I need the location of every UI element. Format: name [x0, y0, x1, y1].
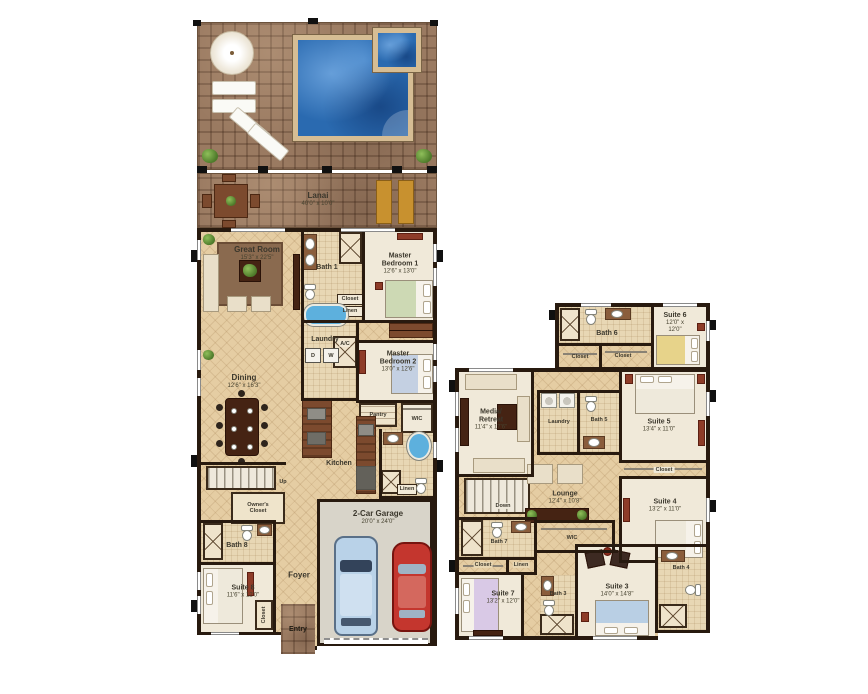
nightstand — [697, 323, 705, 331]
room-name: Dining — [228, 374, 261, 383]
room-dims: 11'4" x 17'6" — [475, 424, 507, 431]
wall — [537, 520, 615, 523]
room-name: Suite 4 — [649, 498, 681, 506]
room-label-laundry2: Laundry — [548, 419, 570, 425]
lounge-chair — [212, 81, 256, 95]
desk-divider — [389, 330, 433, 331]
toilet-icon — [415, 478, 427, 494]
room-label-master2: Master Bedroom 2 13'0" x 12'6" — [372, 351, 424, 374]
room-name: Closet — [474, 562, 493, 568]
wall — [619, 476, 706, 479]
window — [455, 588, 459, 614]
place-setting — [231, 444, 237, 450]
dresser — [359, 350, 366, 374]
wall — [619, 372, 622, 460]
plant-icon — [202, 149, 218, 163]
closet-label: Closet — [474, 562, 493, 568]
window — [593, 636, 637, 640]
closet-label: Closet — [572, 354, 589, 360]
roof-tick — [191, 250, 197, 262]
room-dims: 13'4" x 11'0" — [643, 426, 675, 433]
sink-icon — [515, 523, 527, 531]
pillow — [206, 591, 213, 605]
room-label-kitchen: Kitchen — [326, 460, 352, 468]
mask — [658, 633, 710, 643]
armchair — [227, 296, 247, 312]
dining-chair — [216, 404, 223, 411]
room-dims: 12'4" x 10'8" — [549, 498, 582, 505]
wall — [619, 476, 622, 560]
patio-chair — [222, 174, 236, 182]
room-dims: 12'0" x 12'0" — [660, 320, 691, 334]
sofa — [203, 254, 219, 312]
window — [581, 303, 611, 307]
dining-chair — [261, 422, 268, 429]
kitchen-island — [302, 398, 332, 458]
window — [197, 240, 201, 260]
toilet-icon — [585, 396, 597, 412]
room-dims: 40'0" x 10'0" — [302, 201, 335, 208]
window — [663, 303, 697, 307]
cooktop — [307, 408, 326, 420]
garage-door — [324, 638, 428, 644]
room-label-suite8: Suite 8 11'6" x 12'0" — [227, 584, 259, 599]
wall-post — [197, 166, 207, 173]
linen-label: Linen — [400, 486, 415, 492]
wall — [655, 544, 706, 547]
room-name: Suite 5 — [643, 418, 675, 426]
wall — [651, 307, 654, 367]
room-name: Bath 5 — [587, 417, 611, 423]
room-name: Linen — [513, 562, 530, 568]
appliance-letter: D — [311, 353, 315, 359]
sedan-rear-window — [399, 610, 425, 618]
room-label-bath4: Bath 4 — [669, 565, 693, 571]
room-name: Suite 8 — [227, 584, 259, 592]
blanket — [386, 281, 416, 317]
roof-tick — [710, 390, 716, 402]
stairs-up — [206, 466, 276, 490]
closet-label: Closet — [261, 607, 267, 624]
wall — [356, 340, 433, 343]
lanai: Lanai 40'0" x 10'0" — [197, 173, 437, 228]
sofa — [473, 458, 525, 473]
bed — [656, 335, 700, 365]
floor2-main-wing: Media/ Retreat 11'4" x 17'6" Laundry Bat… — [455, 368, 710, 640]
wall-post — [392, 166, 402, 173]
washer-label: W — [328, 353, 333, 359]
room-dims: 15'3" x 22'5" — [225, 255, 289, 262]
roof-tick — [449, 380, 455, 392]
stairs-down-label: Down — [494, 503, 513, 509]
pillow — [206, 573, 213, 587]
window — [433, 442, 437, 458]
room-dims: 14'0" x 14'8" — [601, 591, 634, 598]
media-console — [460, 398, 469, 446]
room-label-media: Media/ Retreat 11'4" x 17'6" — [475, 409, 507, 432]
wall — [201, 562, 276, 565]
wall — [301, 398, 359, 401]
dresser — [623, 498, 630, 522]
shower-stall — [461, 520, 483, 556]
room-name: Linen — [343, 308, 358, 314]
shower-stall — [540, 614, 574, 635]
wall — [655, 544, 658, 632]
pillow — [694, 541, 701, 554]
shower-stall — [560, 308, 580, 341]
linen-label: Linen — [513, 562, 530, 568]
room-name: Closet — [572, 354, 589, 360]
room-name: Suite 6 — [660, 312, 691, 320]
island-sink — [307, 432, 326, 445]
room-name: Lounge — [549, 490, 582, 498]
linen-label: Linen — [343, 308, 358, 314]
wall-post — [322, 166, 332, 173]
room-label-master1: Master Bedroom 1 12'6" x 13'0" — [374, 253, 426, 276]
nightstand — [625, 374, 633, 384]
patio-chair — [222, 220, 236, 228]
sink-icon — [387, 434, 399, 443]
pillow — [694, 524, 701, 537]
garage: 2-Car Garage 20'0" x 24'0" — [317, 499, 433, 646]
bed — [595, 600, 649, 636]
room-name: Master Bedroom 1 — [374, 253, 426, 269]
room-label-suite6: Suite 6 12'0" x 12'0" — [660, 312, 691, 334]
room-name: A/C — [339, 341, 350, 347]
nightstand — [375, 282, 383, 290]
room-label-bath5: Bath 5 — [587, 417, 611, 423]
appliance-letter: W — [328, 353, 333, 359]
wall — [619, 460, 706, 463]
room-name: Bath 3 — [546, 591, 570, 597]
sofa — [465, 374, 517, 390]
sink-icon — [611, 310, 623, 318]
room-label-entry: Entry — [289, 626, 307, 634]
tv-console — [293, 254, 300, 310]
window — [341, 228, 395, 232]
car-sedan — [392, 542, 432, 632]
room-dims: 13'2" x 11'0" — [649, 506, 681, 513]
room-name: Bath 1 — [316, 264, 337, 272]
toilet-icon — [543, 600, 555, 616]
room-dims: 12'6" x 16'3" — [228, 383, 261, 390]
wall — [362, 232, 365, 320]
room-label-suite4: Suite 4 13'2" x 11'0" — [649, 498, 681, 513]
floor1-house: 2-Car Garage 20'0" x 24'0" — [197, 228, 437, 650]
ottoman — [557, 464, 583, 484]
pillow — [604, 627, 618, 634]
room-name: Bath 4 — [669, 565, 693, 571]
sink-icon — [588, 438, 600, 447]
room-label-suite7: Suite 7 13'2" x 12'0" — [487, 590, 520, 605]
pillow — [423, 284, 431, 297]
wall — [459, 572, 537, 575]
chaise — [517, 396, 530, 442]
toilet-icon — [241, 525, 253, 541]
room-label-dining: Dining 12'6" x 16'3" — [228, 374, 261, 390]
wall — [619, 560, 658, 563]
room-name: WIC — [412, 416, 423, 422]
wall — [379, 496, 433, 499]
dining-chair — [261, 440, 268, 447]
soaking-tub — [407, 432, 431, 460]
dining-chair — [216, 440, 223, 447]
room-label-bath8: Bath 8 — [226, 542, 247, 550]
room-label-bath3: Bath 3 — [546, 591, 570, 597]
wall — [356, 400, 433, 403]
plant-icon — [577, 510, 587, 520]
pillow — [463, 583, 470, 596]
spa — [373, 28, 421, 72]
plant-icon — [416, 149, 432, 163]
room-name: Foyer — [288, 572, 310, 581]
pillow — [691, 351, 698, 362]
room-dims: 20'0" x 24'0" — [338, 519, 418, 526]
wall — [201, 520, 276, 523]
shower-stall — [339, 232, 362, 264]
bed — [385, 280, 433, 318]
wall — [201, 462, 286, 465]
closet-rod — [541, 528, 607, 530]
room-dims: 12'6" x 13'0" — [374, 268, 426, 275]
floor2-top-wing: Bath 6 Closet Closet Suite 6 12'0" x 12'… — [555, 303, 710, 371]
room-name: Closet — [342, 296, 359, 302]
wall — [559, 343, 651, 346]
shower-stall — [659, 604, 687, 628]
room-name: Kitchen — [326, 460, 352, 468]
pillow — [423, 376, 431, 389]
room-name: Owner's Closet — [242, 502, 274, 514]
window — [469, 368, 513, 372]
room-label-garage: 2-Car Garage 20'0" x 24'0" — [338, 510, 418, 526]
blanket — [596, 601, 648, 623]
mask — [197, 635, 281, 655]
sink-icon — [259, 526, 270, 534]
room-name: Pantry — [369, 412, 386, 418]
room-label-great-room: Great Room 15'3" x 22'5" — [225, 246, 289, 262]
pillow — [463, 600, 470, 613]
sedan-roof — [398, 576, 426, 608]
blanket — [636, 389, 694, 413]
bed — [635, 374, 695, 414]
room-label-foyer: Foyer — [288, 572, 310, 581]
dining-chair — [261, 404, 268, 411]
room-name: Linen — [400, 486, 415, 492]
room-name: Media/ — [475, 409, 507, 417]
window — [197, 350, 201, 370]
blanket — [657, 336, 685, 364]
ac-label: A/C — [339, 341, 350, 347]
wall — [612, 520, 615, 553]
suv-rear-window — [341, 618, 371, 626]
wall — [301, 328, 304, 398]
wall-post — [258, 166, 268, 173]
dining-chair — [216, 422, 223, 429]
wall — [531, 372, 534, 474]
toilet-icon — [304, 284, 316, 300]
wall — [459, 474, 534, 477]
wall — [537, 390, 540, 452]
umbrella-pole — [230, 51, 234, 55]
wall — [356, 320, 359, 400]
window — [197, 378, 201, 396]
closet-label: Closet — [342, 296, 359, 302]
window — [231, 228, 285, 232]
toilet-icon — [585, 309, 597, 325]
mask — [317, 646, 437, 654]
room-label-bath1: Bath 1 — [316, 264, 337, 272]
toilet-icon — [685, 584, 701, 596]
wall — [379, 429, 382, 496]
room-name: Closet — [261, 607, 267, 624]
room-label-suite3: Suite 3 14'0" x 14'8" — [601, 583, 634, 598]
closet-label: Closet — [654, 467, 675, 473]
wall — [521, 575, 524, 636]
window — [211, 632, 239, 635]
window — [433, 344, 437, 360]
dresser — [698, 420, 705, 446]
dining-chair — [238, 390, 245, 397]
roof-tick — [449, 560, 455, 572]
sink-icon — [666, 552, 678, 560]
room-label-owners-closet: Owner's Closet — [242, 502, 274, 514]
roof-tick — [193, 20, 201, 26]
wall-oven — [358, 424, 374, 436]
lounge-chair — [247, 122, 290, 161]
window — [197, 596, 201, 614]
pillow — [423, 301, 431, 314]
pool-deck — [197, 22, 437, 170]
place-setting — [231, 426, 237, 432]
sink-icon — [305, 238, 315, 250]
sun-lounger — [376, 180, 392, 224]
pillow — [423, 359, 431, 372]
sink-icon — [543, 580, 552, 591]
roof-tick — [430, 20, 438, 26]
pillow — [624, 627, 638, 634]
plant-icon — [243, 264, 257, 277]
window — [455, 392, 459, 416]
suv-windshield — [340, 560, 372, 572]
roof-tick — [308, 18, 318, 24]
sun-lounger — [398, 180, 414, 224]
room-name: Suite 3 — [601, 583, 634, 591]
washer-icon — [541, 393, 557, 408]
place-setting — [247, 444, 253, 450]
suv-roof — [340, 574, 372, 616]
patio-chair — [250, 194, 260, 208]
wall — [575, 544, 658, 547]
closet-rod — [403, 408, 431, 410]
room-name: Closet — [654, 467, 675, 473]
sink-icon — [305, 254, 315, 266]
shower-stall — [203, 523, 223, 560]
place-setting — [247, 408, 253, 414]
roof-tick — [710, 320, 716, 330]
wall — [537, 452, 622, 455]
room-name: 2-Car Garage — [338, 510, 418, 519]
car-suv — [334, 536, 378, 636]
floorplan-image: Lanai 40'0" x 10'0" 2-Car Garage 20'0" x… — [0, 0, 868, 694]
room-label-laundry: Laundry — [311, 336, 339, 344]
wall — [599, 346, 602, 367]
pillow — [658, 376, 672, 383]
wall — [459, 557, 534, 560]
place-setting — [247, 426, 253, 432]
sedan-windshield — [398, 564, 426, 574]
roof-tick — [549, 310, 555, 320]
room-name: Lanai — [302, 192, 335, 201]
room-name: Retreat — [475, 416, 507, 424]
dresser — [397, 233, 423, 240]
wall — [575, 544, 578, 636]
room-label-lounge: Lounge 12'4" x 10'8" — [549, 490, 582, 505]
armchair — [251, 296, 271, 312]
room-name: Up — [279, 479, 286, 485]
dryer-label: D — [311, 353, 315, 359]
patio-chair — [202, 194, 212, 208]
pillow — [691, 338, 698, 349]
room-name: Great Room — [225, 246, 289, 255]
wall — [577, 390, 580, 452]
room-label-suite5: Suite 5 13'4" x 11'0" — [643, 418, 675, 433]
room-name: Suite 7 — [487, 590, 520, 598]
room-name: Bath 8 — [226, 542, 247, 550]
wall — [273, 520, 276, 632]
room-name: Entry — [289, 626, 307, 634]
room-label-wic2: WIC — [567, 535, 578, 541]
roof-tick — [437, 460, 443, 472]
plant-icon — [203, 350, 214, 360]
roof-tick — [710, 500, 716, 512]
stairs-up-label: Up — [279, 479, 286, 485]
room-label-bath7: Bath 7 — [482, 539, 516, 545]
room-label-pantry: Pantry — [369, 412, 386, 418]
closet-label: Closet — [615, 353, 632, 359]
wall — [534, 517, 537, 575]
roof-tick — [437, 250, 443, 262]
room-label-lanai: Lanai 40'0" x 10'0" — [302, 192, 335, 208]
plant-icon — [226, 196, 236, 206]
window — [433, 268, 437, 286]
room-name: Laundry — [311, 336, 339, 344]
room-name: Master Bedroom 2 — [372, 351, 424, 367]
toilet-icon — [491, 522, 503, 538]
nightstand — [697, 374, 705, 384]
wall — [301, 320, 433, 323]
wall-post — [427, 166, 437, 173]
room-name: Down — [494, 503, 513, 509]
room-dims: 11'6" x 12'0" — [227, 592, 259, 599]
room-name: WIC — [567, 535, 578, 541]
plant-icon — [203, 234, 215, 245]
window — [197, 572, 201, 590]
pillow — [640, 376, 654, 383]
roof-tick — [191, 600, 197, 612]
dryer-icon — [559, 393, 575, 408]
room-dims: 13'2" x 12'0" — [487, 598, 520, 605]
room-dims: 13'0" x 12'6" — [372, 366, 424, 373]
room-name: Bath 7 — [482, 539, 516, 545]
room-label-bath6: Bath 6 — [596, 330, 617, 338]
wall — [459, 517, 534, 520]
window — [433, 366, 437, 382]
roof-tick — [191, 455, 197, 467]
fridge-icon — [356, 466, 376, 490]
window — [469, 636, 503, 640]
window — [455, 428, 459, 452]
room-name: Laundry — [548, 419, 570, 425]
